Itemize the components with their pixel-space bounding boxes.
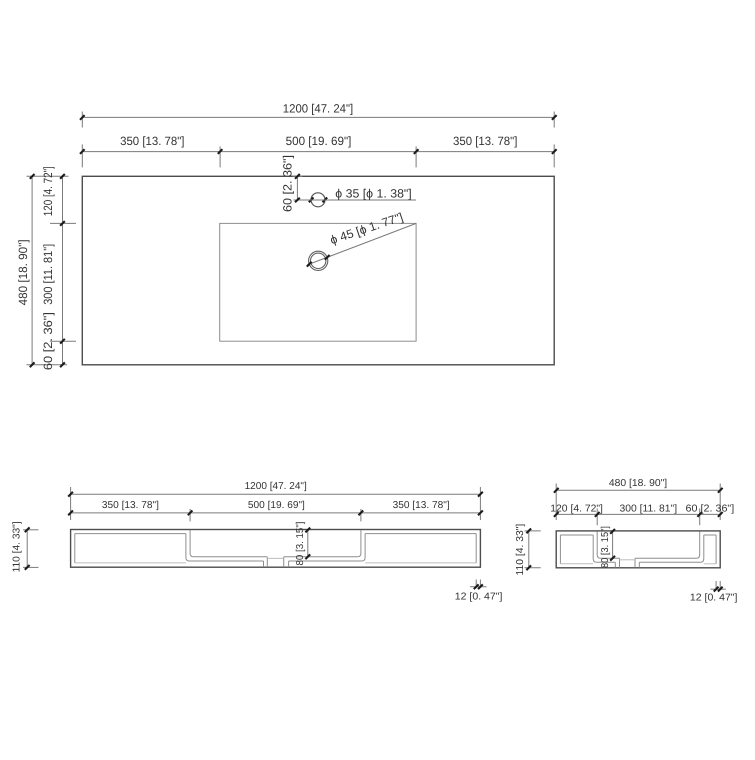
svg-text:ϕ 45 [ϕ 1. 77"]: ϕ 45 [ϕ 1. 77"] [328,210,405,247]
svg-text:12 [0. 47"]: 12 [0. 47"] [690,593,738,604]
svg-text:300 [11. 81"]: 300 [11. 81"] [41,244,55,305]
svg-text:120 [4. 72"]: 120 [4. 72"] [41,166,55,216]
svg-text:1200 [47. 24"]: 1200 [47. 24"] [283,102,353,116]
svg-text:80 [3. 15"]: 80 [3. 15"] [295,521,306,565]
svg-text:500 [19. 69"]: 500 [19. 69"] [248,500,305,511]
svg-text:110 [4. 33"]: 110 [4. 33"] [515,524,526,576]
svg-text:350 [13. 78"]: 350 [13. 78"] [120,134,184,148]
svg-text:350 [13. 78"]: 350 [13. 78"] [453,134,517,148]
svg-text:300 [11. 81"]: 300 [11. 81"] [620,504,678,515]
svg-text:350 [13. 78"]: 350 [13. 78"] [393,500,450,511]
svg-text:500 [19. 69"]: 500 [19. 69"] [286,134,352,148]
svg-text:60 [2. 36"]: 60 [2. 36"] [280,155,294,212]
svg-text:110 [4. 33"]: 110 [4. 33"] [12,521,23,572]
svg-text:80 [3. 15"]: 80 [3. 15"] [600,526,611,568]
svg-text:60 [2. 36"]: 60 [2. 36"] [686,504,735,515]
svg-text:350 [13. 78"]: 350 [13. 78"] [102,500,159,511]
svg-text:120 [4. 72"]: 120 [4. 72"] [550,504,603,515]
svg-text:ϕ 35 [ϕ 1. 38"]: ϕ 35 [ϕ 1. 38"] [335,186,412,200]
svg-text:60 [2. 36"]: 60 [2. 36"] [41,312,55,370]
svg-text:480 [18. 90"]: 480 [18. 90"] [16,239,30,305]
svg-text:12 [0. 47"]: 12 [0. 47"] [455,592,503,603]
svg-text:1200 [47. 24"]: 1200 [47. 24"] [245,481,307,492]
svg-text:480 [18. 90"]: 480 [18. 90"] [609,478,668,489]
